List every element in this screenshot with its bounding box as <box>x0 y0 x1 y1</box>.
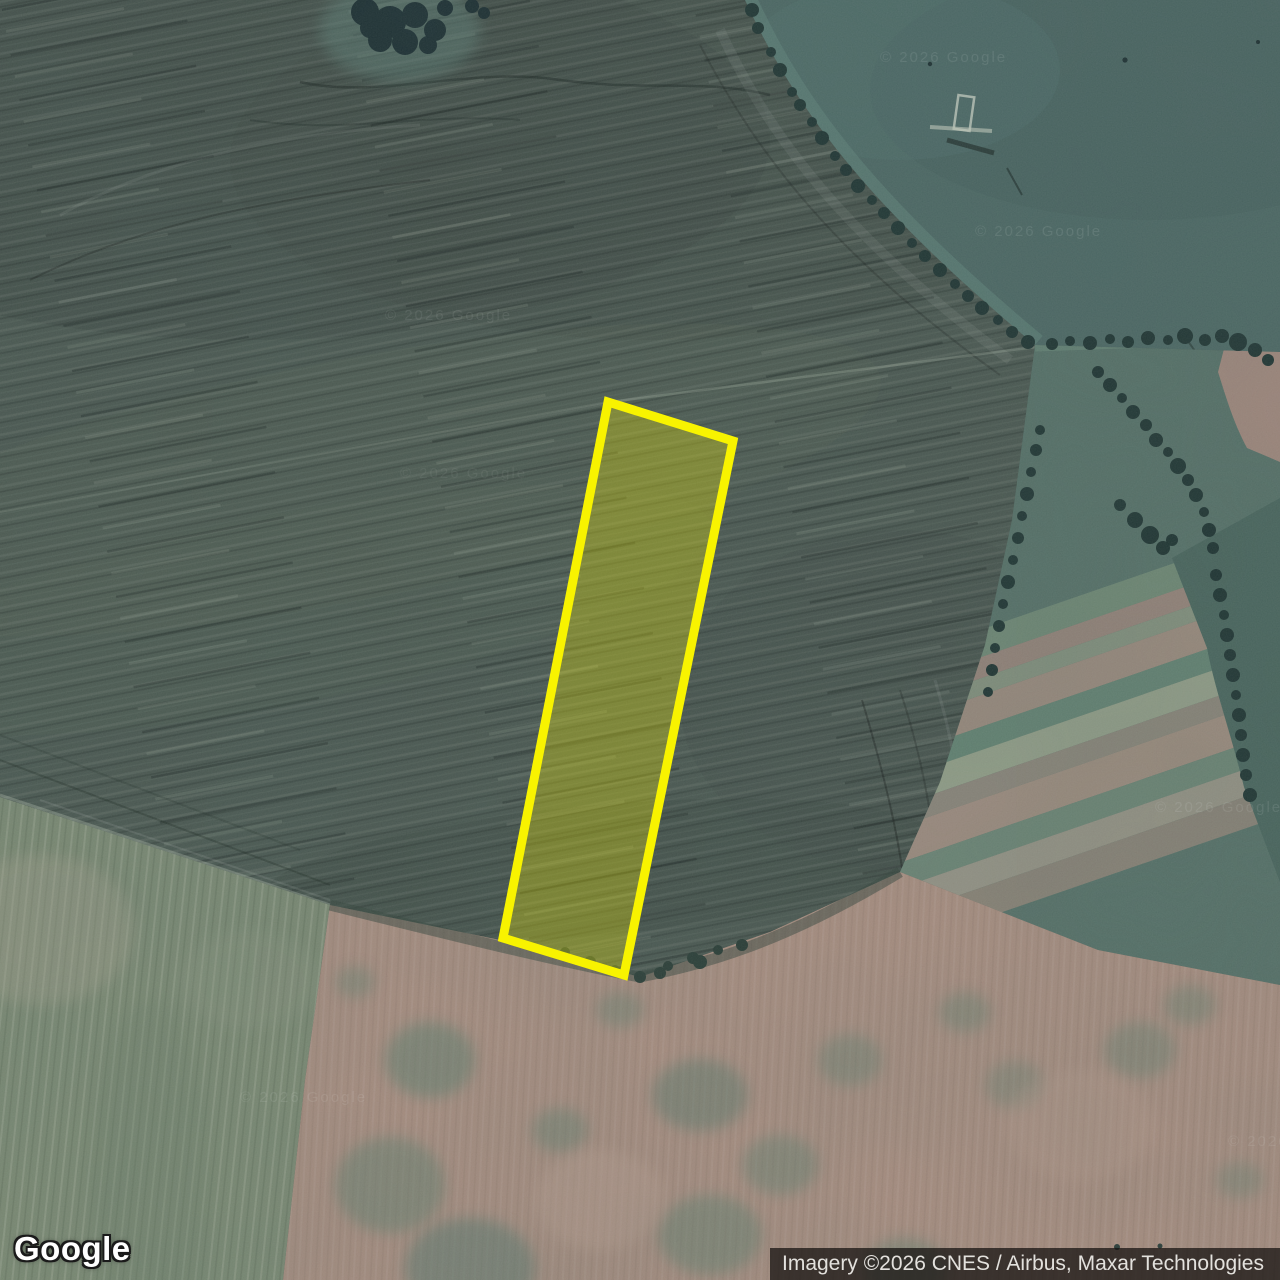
attribution-text: Imagery ©2026 CNES / Airbus, Maxar Techn… <box>782 1252 1264 1276</box>
attribution-bar: Imagery ©2026 CNES / Airbus, Maxar Techn… <box>770 1248 1280 1280</box>
google-logo[interactable]: Google <box>14 1230 131 1268</box>
satellite-imagery[interactable]: © 2026 Google © 2026 Google © 2026 Googl… <box>0 0 1280 1280</box>
map-viewport[interactable]: © 2026 Google © 2026 Google © 2026 Googl… <box>0 0 1280 1280</box>
